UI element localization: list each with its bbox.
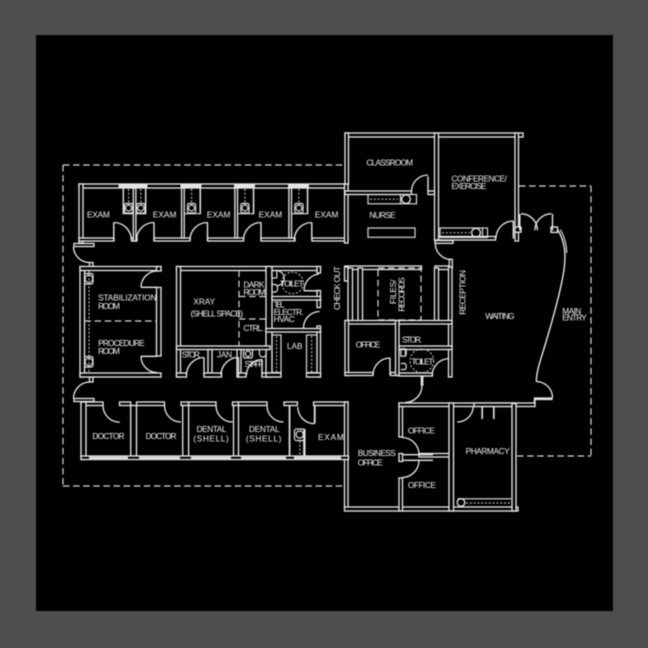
svg-text:STOR.: STOR. xyxy=(402,334,422,344)
svg-text:EXERCISE: EXERCISE xyxy=(451,181,486,191)
svg-text:JAN.: JAN. xyxy=(217,350,235,360)
svg-text:EXAM: EXAM xyxy=(259,210,283,220)
svg-text:NURSE: NURSE xyxy=(369,210,396,220)
svg-text:DOCTOR: DOCTOR xyxy=(146,431,177,441)
svg-text:DENTAL: DENTAL xyxy=(249,424,280,434)
svg-text:OFFICE: OFFICE xyxy=(358,458,383,468)
svg-text:EXAM: EXAM xyxy=(87,210,110,220)
svg-text:EXAM: EXAM xyxy=(207,210,231,220)
svg-text:STAFF: STAFF xyxy=(245,359,264,369)
svg-text:ROOM: ROOM xyxy=(98,301,120,311)
svg-text:BUSINESS: BUSINESS xyxy=(358,448,396,458)
svg-text:EXAM: EXAM xyxy=(153,210,177,220)
svg-text:WAITING: WAITING xyxy=(485,311,515,321)
svg-text:DOCTOR: DOCTOR xyxy=(92,431,124,441)
svg-text:HVAC: HVAC xyxy=(274,314,295,324)
svg-text:OFFICE: OFFICE xyxy=(408,480,436,490)
svg-text:OFFICE: OFFICE xyxy=(408,426,435,436)
svg-text:DENTAL: DENTAL xyxy=(197,424,227,434)
svg-text:ENTRY: ENTRY xyxy=(562,313,587,323)
svg-text:EXAM: EXAM xyxy=(315,210,339,220)
svg-text:STOR.: STOR. xyxy=(182,350,201,360)
svg-text:CHECK OUT: CHECK OUT xyxy=(332,266,342,310)
svg-text:(SHELL): (SHELL) xyxy=(193,434,229,444)
svg-text:TOILET: TOILET xyxy=(411,357,433,367)
svg-text:CLASSROOM: CLASSROOM xyxy=(366,158,413,168)
svg-text:XRAY: XRAY xyxy=(193,297,215,307)
svg-text:(SHELL SPACE): (SHELL SPACE) xyxy=(191,309,244,319)
svg-text:PHARMACY: PHARMACY xyxy=(466,446,510,456)
svg-text:TOILET: TOILET xyxy=(280,278,304,288)
svg-text:LAB: LAB xyxy=(287,341,303,351)
svg-text:ROOM: ROOM xyxy=(243,287,265,297)
svg-text:EXAM: EXAM xyxy=(318,432,344,442)
svg-text:RECEPTION: RECEPTION xyxy=(458,270,468,315)
svg-text:CTRL.: CTRL. xyxy=(243,323,263,333)
svg-text:ROOM: ROOM xyxy=(98,346,120,356)
svg-text:RECORDS: RECORDS xyxy=(397,277,407,312)
svg-text:OFFICE: OFFICE xyxy=(356,339,381,349)
svg-text:(SHELL): (SHELL) xyxy=(246,434,282,444)
